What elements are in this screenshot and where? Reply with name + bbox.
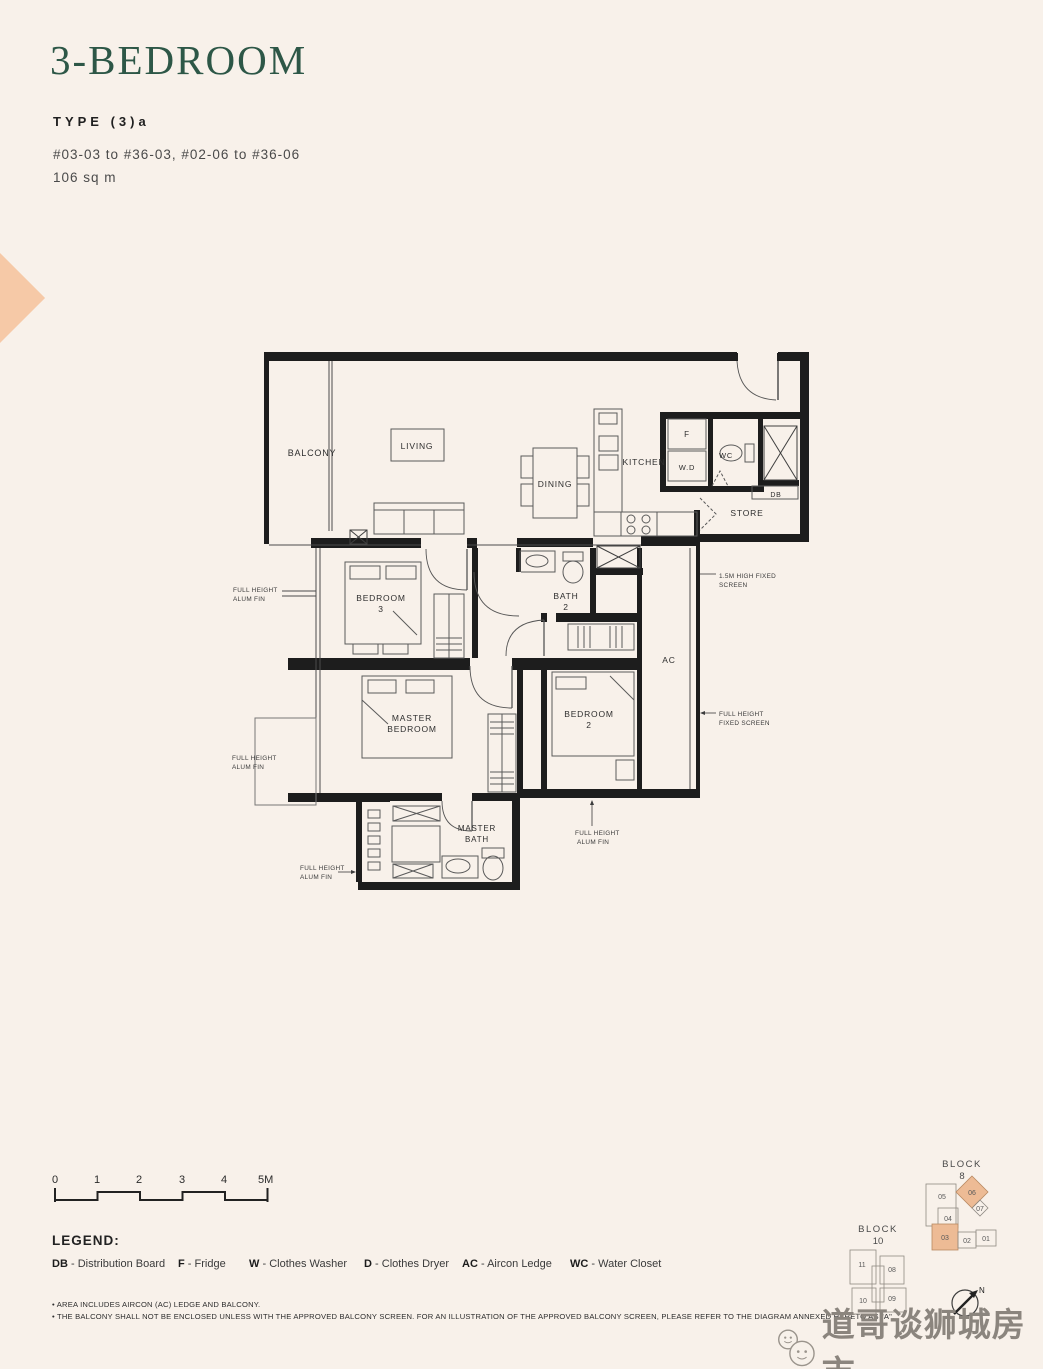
bedroom2-furniture (552, 624, 634, 780)
floor-plan: BALCONY LIVING DINING KITCHEN F W.D WC D… (225, 340, 840, 915)
block8-unit-06: 06 (968, 1190, 976, 1197)
legend-title: LEGEND: (52, 1233, 120, 1248)
watermark: 道哥谈狮城房市 (775, 1298, 1043, 1369)
bedroom3-furniture (345, 562, 464, 658)
ac-label: AC (662, 655, 675, 665)
block8-unit-05: 05 (938, 1194, 946, 1201)
plan-annotations: FULL HEIGHT ALUM FIN FULL HEIGHT ALUM FI… (232, 573, 776, 881)
master-bedroom-label-2: BEDROOM (387, 724, 437, 734)
fixed-screen-15m-note-1: 1.5M HIGH FIXED (719, 573, 776, 580)
bedroom2-label-2: 2 (586, 720, 592, 730)
bedroom2-label-1: BEDROOM (564, 709, 614, 719)
bath2-fixtures (520, 551, 583, 583)
alum-fin-note-b2-2: ALUM FIN (577, 839, 609, 846)
master-bath-label-2: BATH (465, 835, 489, 844)
alum-fin-note-mbath-1: FULL HEIGHT (300, 865, 345, 872)
watermark-text: 道哥谈狮城房市 (822, 1298, 1043, 1369)
legend-item-d: D - Clothes Dryer (364, 1258, 449, 1270)
block10-unit-08: 08 (888, 1267, 896, 1274)
scale-1: 1 (94, 1174, 100, 1186)
scale-bar-line (55, 1188, 268, 1202)
fridge-label: F (684, 430, 690, 439)
legend-item-db: DB - Distribution Board (52, 1258, 165, 1270)
fixed-screen-15m-note-2: SCREEN (719, 582, 748, 589)
block10-number: 10 (873, 1236, 884, 1247)
block10-unit-11: 11 (858, 1262, 865, 1269)
legend-item-w: W - Clothes Washer (249, 1258, 347, 1270)
room-labels: BALCONY LIVING DINING KITCHEN F W.D WC D… (288, 430, 782, 844)
legend-item-ac: AC - Aircon Ledge (462, 1258, 552, 1270)
kitchen-label: KITCHEN (623, 457, 666, 467)
store-label: STORE (730, 508, 763, 518)
footnote-1: • AREA INCLUDES AIRCON (AC) LEDGE AND BA… (52, 1300, 260, 1309)
bedroom3-label-1: BEDROOM (356, 593, 406, 603)
washer-dryer-label: W.D (679, 463, 696, 472)
bath2-label-2: 2 (563, 602, 569, 612)
block8-unit-07: 07 (976, 1206, 984, 1213)
block8-unit-04: 04 (944, 1216, 952, 1223)
block10-label: BLOCK (858, 1224, 898, 1235)
compass-n-label: N (979, 1286, 985, 1295)
bedroom3-label-2: 3 (378, 604, 384, 614)
block8-unit-01: 01 (982, 1236, 990, 1243)
block8: BLOCK 8 05 06 07 04 03 02 01 (926, 1159, 996, 1250)
floorplan-page: 3-BEDROOM TYPE (3)a #03-03 to #36-03, #0… (0, 0, 1043, 1369)
scale-5m: 5M (258, 1174, 273, 1186)
scale-3: 3 (179, 1174, 185, 1186)
bath2-label-1: BATH (553, 591, 578, 601)
legend-item-f: F - Fridge (178, 1258, 226, 1270)
alum-fin-note-b2-1: FULL HEIGHT (575, 830, 620, 837)
scale-bar: 0 1 2 3 4 5M (0, 0, 300, 1240)
fixed-screen-full-note-1: FULL HEIGHT (719, 711, 764, 718)
master-bath-label-1: MASTER (458, 824, 496, 833)
dining-label: DINING (538, 479, 573, 489)
legend-item-wc: WC - Water Closet (570, 1258, 661, 1270)
footnote-2: • THE BALCONY SHALL NOT BE ENCLOSED UNLE… (52, 1312, 894, 1321)
block8-unit-02: 02 (963, 1238, 971, 1245)
block8-label: BLOCK (942, 1159, 982, 1170)
scale-0: 0 (52, 1174, 58, 1186)
interior-doors (421, 538, 547, 831)
master-bedroom-furniture (362, 676, 516, 792)
fixed-screen-full-note-2: FIXED SCREEN (719, 720, 770, 727)
kitchen-fixtures (594, 409, 706, 536)
master-bedroom-label-1: MASTER (392, 713, 432, 723)
scale-2: 2 (136, 1174, 142, 1186)
block8-unit-03: 03 (941, 1235, 949, 1242)
scale-4: 4 (221, 1174, 227, 1186)
block8-number: 8 (959, 1171, 964, 1182)
wc-label: WC (719, 451, 733, 460)
entrance-door (737, 350, 778, 400)
alum-fin-note-mbath-2: ALUM FIN (300, 874, 332, 881)
watermark-logo-icon (775, 1321, 818, 1369)
living-label: LIVING (401, 441, 434, 451)
db-label: DB (770, 492, 781, 499)
